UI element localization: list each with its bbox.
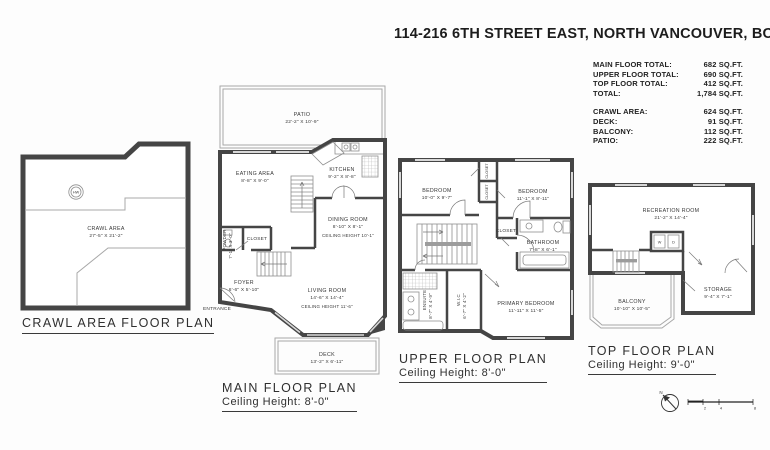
upper-floor-plan-drawing: BEDROOM 10'-0" X 9'-7" BEDROOM 11'-1" X … [395, 140, 580, 380]
area-statistics: MAIN FLOOR TOTAL: 682 SQ.FT. UPPER FLOOR… [593, 60, 743, 146]
page-title: 114-216 6TH STREET EAST, NORTH VANCOUVER… [394, 26, 754, 42]
ensuite-label: ENSUITE [422, 290, 427, 310]
scale-bar: 2 4 8 [688, 399, 757, 411]
powder-label: POWDER [222, 230, 227, 251]
bedroom1-dims: 10'-0" X 9'-7" [422, 195, 453, 201]
stair-rail [425, 242, 471, 246]
dining-ceiling-note: CEILING HEIGHT 10'-1" [322, 233, 374, 238]
crawl-area-label: CRAWL AREA [87, 226, 125, 232]
stat-value: 682 SQ.FT. [704, 60, 743, 70]
living-room-label: LIVING ROOM [308, 288, 347, 294]
wic-dims: 6'-7" X 4'-2" [462, 293, 467, 319]
deck-dims: 13'-2" X 6'-11" [311, 359, 344, 365]
fridge [362, 156, 378, 177]
washer-label: W [658, 241, 662, 245]
bedroom1-label: BEDROOM [422, 188, 451, 194]
balcony-dims: 10'-10" X 10'-5" [614, 306, 650, 312]
scale-tick-4: 4 [720, 406, 723, 411]
dining-room-label: DINING ROOM [328, 217, 368, 223]
living-ceiling-note: CEILING HEIGHT 11'-6" [301, 304, 353, 309]
living-room-dims: 14'-6" X 14'-4" [310, 295, 343, 301]
plan-ceiling-text: Ceiling Height: 8'-0" [399, 367, 547, 379]
crawl-plan-title: CRAWL AREA FLOOR PLAN [22, 316, 214, 334]
kitchen-dims: 9'-2" X 8'-8" [328, 174, 356, 180]
north-label: N [659, 390, 662, 395]
main-floor-plan-drawing: PATIO 22'-2" X 10'-9" EATING AREA 8'-8" … [215, 80, 395, 380]
stat-row-top-floor: TOP FLOOR TOTAL: 412 SQ.FT. [593, 79, 743, 89]
bathroom-label: BATHROOM [527, 240, 560, 246]
deck-label: DECK [319, 352, 335, 358]
stat-value: 222 SQ.FT. [704, 136, 743, 146]
stat-value: 91 SQ.FT. [708, 117, 743, 127]
storage-dims: 9'-4" X 7'-1" [704, 294, 732, 300]
closet-label: CLOSET [247, 236, 267, 242]
stat-label: PATIO: [593, 136, 618, 146]
plan-title-text: CRAWL AREA FLOOR PLAN [22, 316, 214, 330]
top-floor-plan-drawing: W D RECREATION ROOM 21'-2" X 14'-4" BALC… [585, 175, 770, 365]
plan-title-text: UPPER FLOOR PLAN [399, 352, 547, 366]
primary-bedroom-label: PRIMARY BEDROOM [497, 301, 554, 307]
top-plan-title: TOP FLOOR PLAN Ceiling Height: 9'-0" [588, 344, 716, 375]
dryer-label: D [672, 241, 675, 245]
stat-label: UPPER FLOOR TOTAL: [593, 70, 679, 80]
recreation-room-label: RECREATION ROOM [643, 208, 700, 214]
eating-area-label: EATING AREA [236, 171, 274, 177]
hot-water-tank-icon: HW [69, 185, 83, 199]
crawl-area-dims: 27'-5" X 21'-2" [89, 233, 122, 239]
stat-label: MAIN FLOOR TOTAL: [593, 60, 672, 70]
stat-row-crawl: CRAWL AREA: 624 SQ.FT. [593, 107, 743, 117]
upper-plan-title: UPPER FLOOR PLAN Ceiling Height: 8'-0" [399, 352, 547, 383]
primary-bedroom-dims: 11'-11" X 11'-5" [508, 308, 543, 314]
closet1-label: CLOSET [485, 163, 489, 179]
stat-value: 112 SQ.FT. [704, 127, 743, 137]
stat-label: DECK: [593, 117, 618, 127]
patio-label: PATIO [294, 112, 311, 118]
plan-title-text: TOP FLOOR PLAN [588, 344, 716, 358]
stat-label: BALCONY: [593, 127, 633, 137]
bathroom-dims: 7'-8" X 6'-1" [529, 247, 557, 253]
plan-ceiling-text: Ceiling Height: 8'-0" [222, 396, 357, 408]
stats-divider [593, 98, 743, 107]
plan-title-text: MAIN FLOOR PLAN [222, 381, 357, 395]
plan-ceiling-text: Ceiling Height: 9'-0" [588, 359, 716, 371]
stat-value: 690 SQ.FT. [704, 70, 743, 80]
stat-row-deck: DECK: 91 SQ.FT. [593, 117, 743, 127]
crawl-area-plan-drawing: HW CRAWL AREA 27'-5" X 21'-2" [0, 140, 215, 340]
north-arrow-icon: N [659, 390, 678, 412]
scale-tick-2: 2 [704, 406, 707, 411]
kitchen-label: KITCHEN [329, 167, 354, 173]
eating-area-dims: 8'-8" X 9'-0" [241, 178, 269, 184]
stat-value: 624 SQ.FT. [704, 107, 743, 117]
stat-row-main-floor: MAIN FLOOR TOTAL: 682 SQ.FT. [593, 60, 743, 70]
foyer-label: FOYER [234, 280, 254, 286]
balcony-label: BALCONY [618, 299, 646, 305]
scale-tick-8: 8 [754, 406, 757, 411]
bedroom2-dims: 11'-1" X 8'-11" [517, 196, 550, 202]
storage-label: STORAGE [704, 287, 732, 293]
hw-label: HW [73, 191, 80, 195]
dining-room-dims: 8'-10" X 8'-1" [333, 224, 364, 230]
stat-value: 1,784 SQ.FT. [697, 89, 743, 99]
stat-row-total: TOTAL: 1,784 SQ.FT. [593, 89, 743, 99]
bedroom2-label: BEDROOM [518, 189, 547, 195]
stat-value: 412 SQ.FT. [704, 79, 743, 89]
stat-row-patio: PATIO: 222 SQ.FT. [593, 136, 743, 146]
stat-label: TOP FLOOR TOTAL: [593, 79, 668, 89]
ensuite-dims: 8'-7" X 4'-9" [428, 293, 433, 319]
stat-label: TOTAL: [593, 89, 621, 99]
floorplan-sheet: 114-216 6TH STREET EAST, NORTH VANCOUVER… [0, 0, 770, 450]
patio-dims: 22'-2" X 10'-9" [285, 119, 318, 125]
stat-row-upper-floor: UPPER FLOOR TOTAL: 690 SQ.FT. [593, 70, 743, 80]
foyer-dims: 6'-6" X 5'-10" [229, 287, 260, 293]
recreation-room-dims: 21'-2" X 14'-4" [654, 215, 687, 221]
powder-dims: 7'-1" X 3'-0" [228, 233, 233, 259]
wic-label: W.I.C [456, 294, 461, 306]
stat-row-balcony: BALCONY: 112 SQ.FT. [593, 127, 743, 137]
closet3-label: CLOSET [496, 228, 516, 234]
entrance-label: ENTRANCE [203, 306, 231, 312]
main-plan-title: MAIN FLOOR PLAN Ceiling Height: 8'-0" [222, 381, 357, 412]
stat-label: CRAWL AREA: [593, 107, 648, 117]
closet2-label: CLOSET [485, 184, 489, 200]
compass-and-scale: N 2 4 8 [653, 388, 768, 423]
